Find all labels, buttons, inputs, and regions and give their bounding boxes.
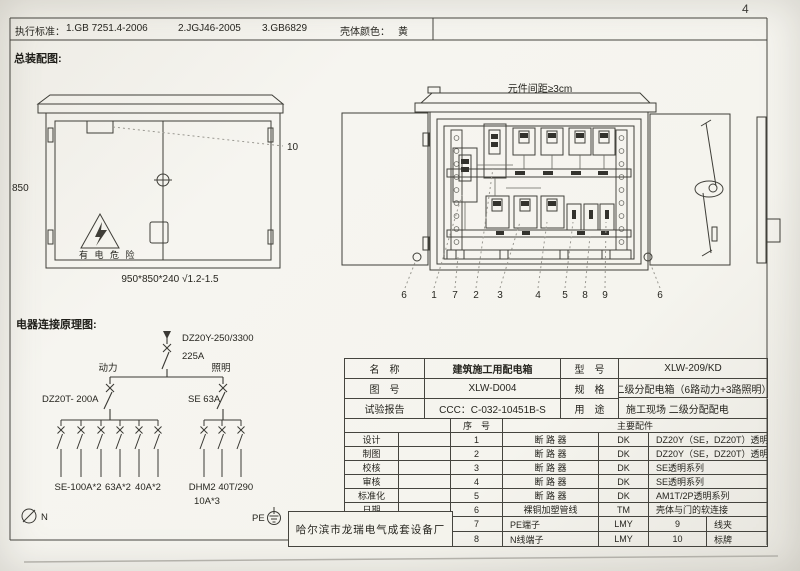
shell-color-value: 黄 — [398, 23, 408, 38]
sheet-edge-shadow — [24, 556, 778, 562]
interior-callouts: 6 1 7 2 3 4 5 8 9 6 — [401, 290, 663, 301]
out-right-2: 10A*3 — [194, 496, 220, 507]
part-name: 断 路 器 — [503, 475, 599, 489]
standard-3: 3.GB6829 — [262, 23, 307, 34]
part-code: DK — [599, 447, 649, 461]
svg-text:2: 2 — [473, 290, 479, 301]
drawing-no-value: XLW-D004 — [425, 379, 561, 399]
breaker-right-label: SE 63A — [188, 394, 221, 405]
front-size-note: 950*850*240 √1.2-1.5 — [121, 273, 219, 285]
branch-left-label: 动力 — [98, 362, 117, 374]
breaker-left-label: DZ20T- 200A — [42, 394, 99, 405]
part-desc: DZ20Y（SE，DZ20T）透明系列 — [649, 447, 768, 461]
part-code: LMY — [599, 532, 649, 547]
use-label: 用 途 — [561, 399, 619, 419]
name-label: 名 称 — [345, 359, 425, 379]
sign-label: 标准化 — [345, 489, 399, 503]
standard-1: 1.GB 7251.4-2006 — [66, 23, 148, 34]
neutral-label: N — [41, 512, 48, 523]
assembly-section-title: 总装配图: — [14, 50, 62, 66]
part-no: 2 — [451, 447, 503, 461]
sign-cell — [399, 475, 451, 489]
part-code: DK — [599, 433, 649, 447]
sign-cell — [399, 447, 451, 461]
report-label: 试验报告 — [345, 399, 425, 419]
standard-2: 2.JGJ46-2005 — [178, 23, 241, 34]
title-block-head: 名 称 建筑施工用配电箱 型 号 XLW-209/KD 图 号 XLW-D004… — [345, 359, 768, 419]
front-callout-10: 10 — [287, 142, 299, 153]
part-name: N线端子 — [503, 532, 599, 547]
part-desc: DZ20Y（SE，DZ20T）透明系列 — [649, 433, 768, 447]
part-code: DK — [599, 475, 649, 489]
part-no: 3 — [451, 461, 503, 475]
schematic-labels: DZ20Y-250/3300 225A 动力 照明 DZ20T- 200A SE… — [41, 333, 265, 524]
branch-right-label: 照明 — [211, 363, 230, 374]
seq-header: 序 号 — [451, 419, 503, 433]
use-value: 施工现场 二级分配配电 — [619, 399, 768, 419]
sign-cell — [399, 433, 451, 447]
part-no2: 10 — [649, 532, 707, 547]
sign-cell — [399, 461, 451, 475]
spec-value: 二级分配电箱（6路动力+3路照明） — [619, 379, 768, 398]
front-height-dim: 850 — [12, 183, 29, 194]
part-desc: 线夹 — [707, 517, 768, 532]
pe-label: PE — [252, 513, 265, 524]
out-left-3: 40A*2 — [135, 482, 161, 493]
part-no: 4 — [451, 475, 503, 489]
report-value: CCC：C-032-10451B-S — [425, 399, 561, 419]
svg-text:6: 6 — [657, 290, 663, 301]
interior-components — [447, 124, 631, 259]
sign-label: 设计 — [345, 433, 399, 447]
part-no: 8 — [451, 532, 503, 547]
part-desc: SE透明系列 — [649, 461, 768, 475]
schematic-section-title: 电器连接原理图: — [16, 316, 97, 332]
part-no2: 9 — [649, 517, 707, 532]
svg-text:9: 9 — [602, 290, 608, 301]
part-name: 断 路 器 — [503, 461, 599, 475]
part-code: DK — [599, 489, 649, 503]
shell-color-label: 壳体颜色： — [340, 23, 390, 38]
parts-rows-1-6: 设计 1 断 路 器 DK DZ20Y（SE，DZ20T）透明系列 制图 2 断… — [345, 433, 768, 517]
part-name: PE端子 — [503, 517, 599, 532]
sign-cell — [399, 489, 451, 503]
svg-text:6: 6 — [401, 290, 407, 301]
schematic-lines — [61, 331, 241, 420]
part-code: TM — [599, 503, 649, 517]
main-breaker-rating: 225A — [182, 351, 205, 362]
part-code: LMY — [599, 517, 649, 532]
part-name: 裸铜加塑管线 — [503, 503, 599, 517]
front-view-drawing — [38, 95, 283, 268]
svg-text:3: 3 — [497, 290, 503, 301]
parts-header-row: 序 号 主要配件 — [345, 419, 768, 433]
part-name: 断 路 器 — [503, 489, 599, 503]
front-warning-text: 有 电 危 险 — [79, 249, 137, 260]
interior-view-drawing — [342, 87, 780, 270]
part-desc: SE透明系列 — [649, 475, 768, 489]
factory-name-box: 哈尔滨市龙瑞电气成套设备厂 — [288, 511, 453, 547]
part-code: DK — [599, 461, 649, 475]
parts-header: 主要配件 — [503, 419, 768, 433]
out-left-2: 63A*2 — [105, 482, 131, 493]
drawing-no-label: 图 号 — [345, 379, 425, 399]
part-desc: 标牌 — [707, 532, 768, 547]
out-left-1: SE-100A*2 — [54, 482, 101, 493]
empty-cell — [345, 419, 451, 433]
svg-text:4: 4 — [535, 290, 541, 301]
standards-label: 执行标准： — [15, 23, 65, 38]
sign-label: 校核 — [345, 461, 399, 475]
part-no: 5 — [451, 489, 503, 503]
breakers — [447, 124, 631, 259]
out-right-1: DHM2 40T/290 — [189, 482, 253, 493]
model-label: 型 号 — [561, 359, 619, 379]
part-desc: 壳体与门的软连接 — [649, 503, 768, 517]
part-desc: AM1T/2P透明系列 — [649, 489, 768, 503]
main-breaker-model: DZ20Y-250/3300 — [182, 333, 253, 344]
callout-10-leader — [113, 127, 283, 146]
part-no: 7 — [451, 517, 503, 532]
svg-text:7: 7 — [452, 290, 458, 301]
schematic-output-drops — [57, 420, 245, 477]
sign-label: 审核 — [345, 475, 399, 489]
part-no: 6 — [451, 503, 503, 517]
svg-text:8: 8 — [582, 290, 588, 301]
schematic-symbols — [22, 507, 281, 525]
svg-text:5: 5 — [562, 290, 568, 301]
part-no: 1 — [451, 433, 503, 447]
part-name: 断 路 器 — [503, 447, 599, 461]
svg-text:1: 1 — [431, 290, 437, 301]
model-value: XLW-209/KD — [619, 359, 768, 379]
sign-label: 制图 — [345, 447, 399, 461]
part-name: 断 路 器 — [503, 433, 599, 447]
spec-label: 规 格 — [561, 379, 619, 399]
standards-bar: 执行标准： 1.GB 7251.4-2006 2.JGJ46-2005 3.GB… — [10, 18, 767, 40]
name-value: 建筑施工用配电箱 — [425, 359, 561, 379]
